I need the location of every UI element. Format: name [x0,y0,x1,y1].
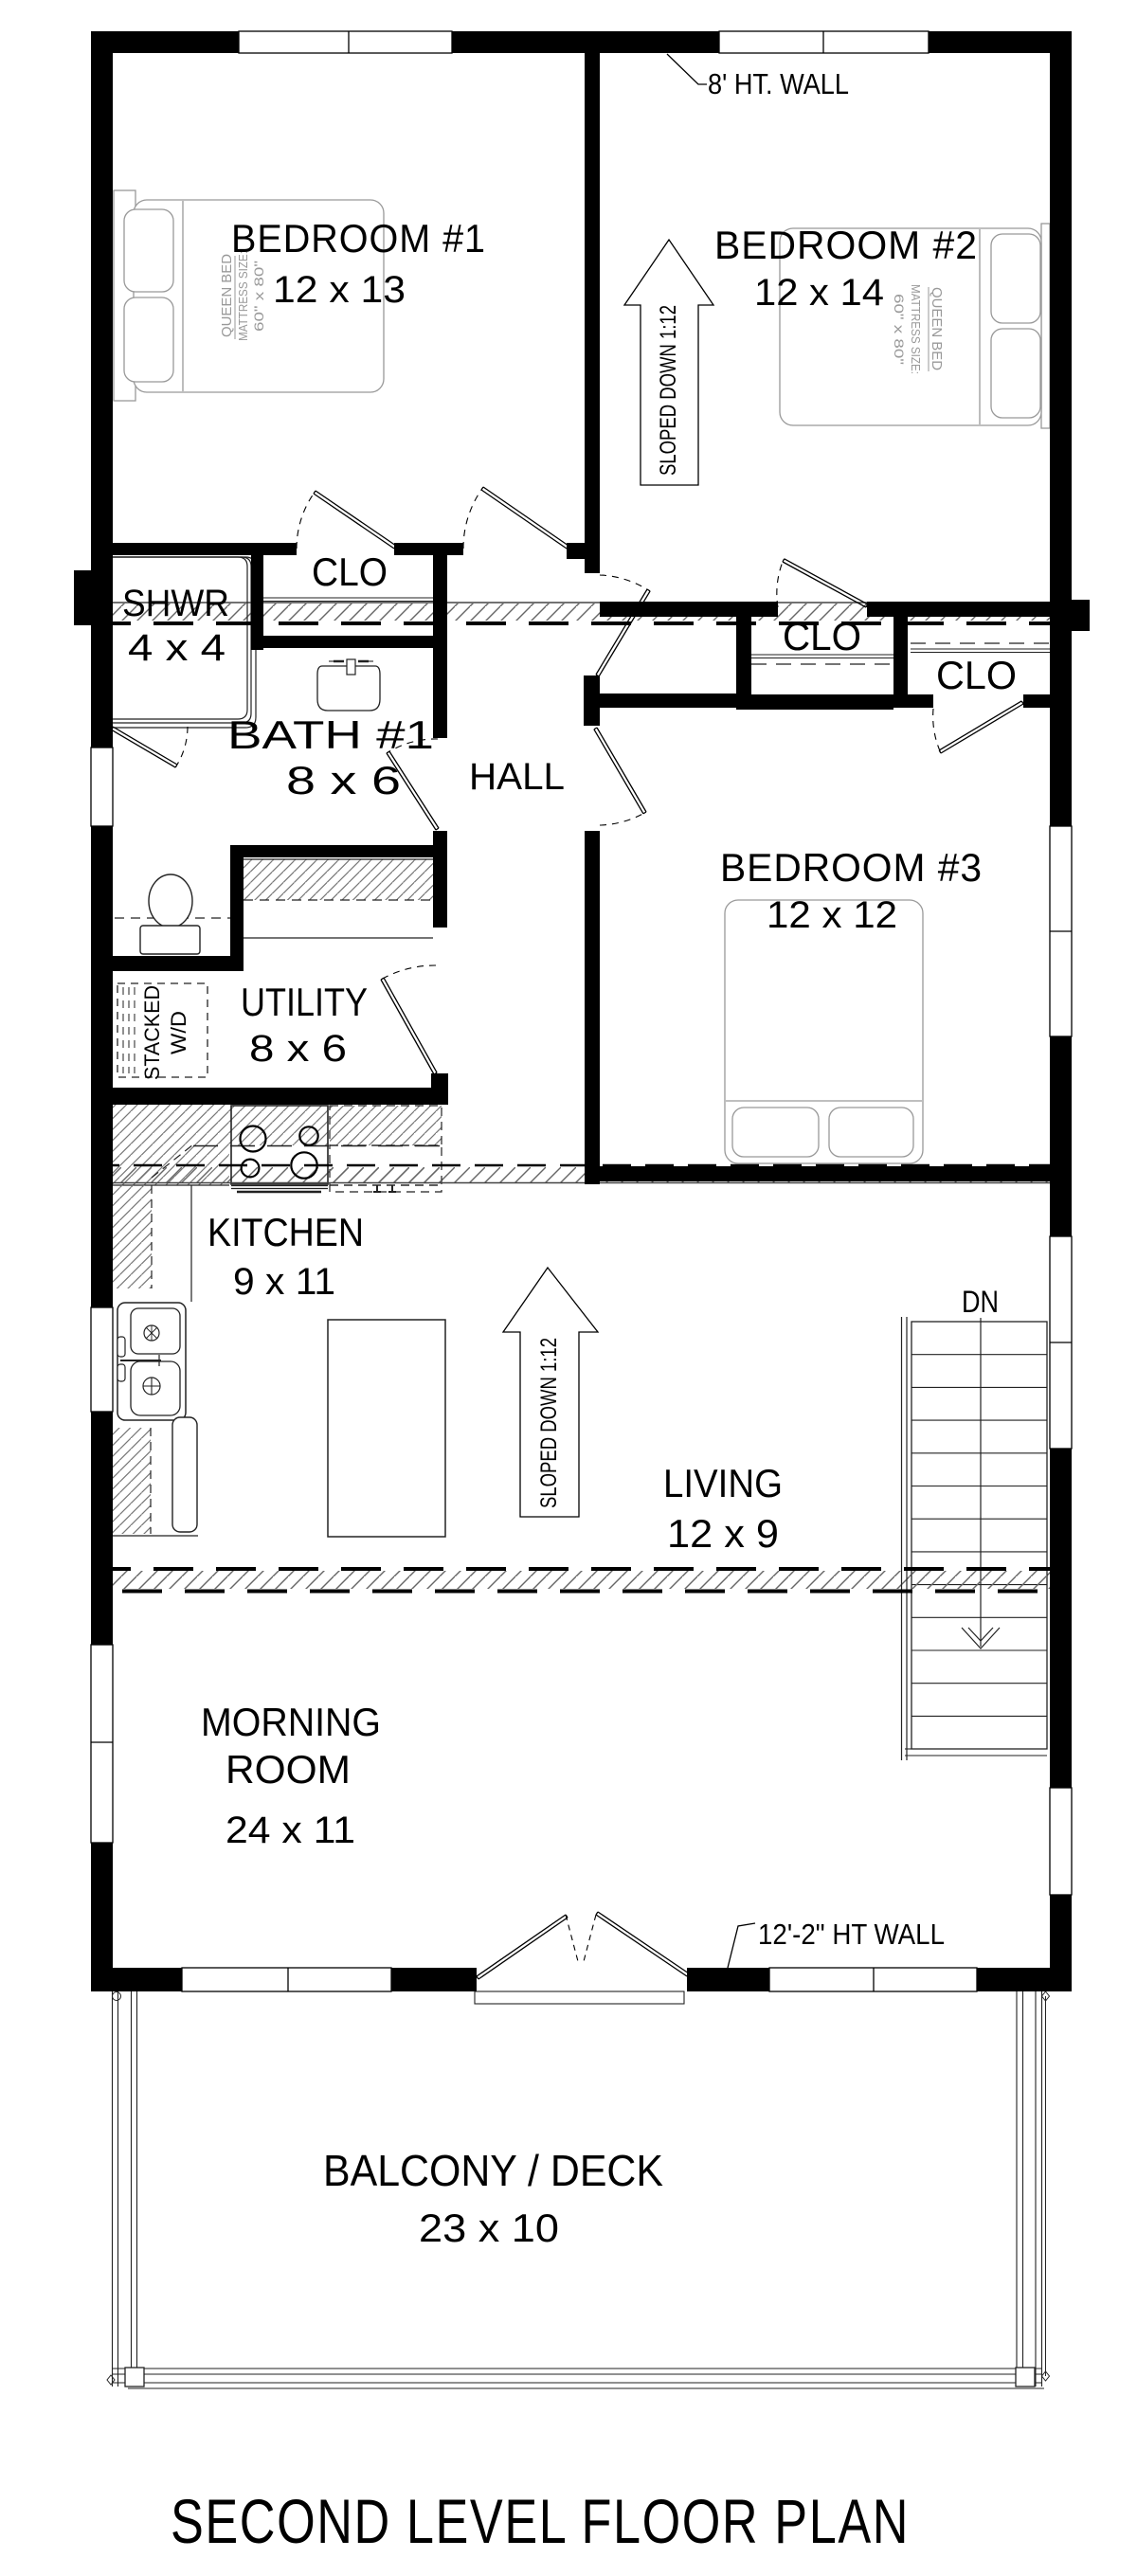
svg-text:UTILITY: UTILITY [241,980,368,1024]
svg-text:SECOND LEVEL FLOOR PLAN: SECOND LEVEL FLOOR PLAN [171,2486,910,2556]
svg-text:MORNING: MORNING [201,1700,381,1744]
svg-text:HALL: HALL [469,756,565,798]
svg-text:8 x 6: 8 x 6 [249,1028,347,1070]
svg-text:4 x 4: 4 x 4 [128,627,226,669]
svg-text:BEDROOM #2: BEDROOM #2 [714,223,978,267]
svg-text:SLOPED DOWN 1:12: SLOPED DOWN 1:12 [656,305,681,476]
svg-text:12'-2" HT WALL: 12'-2" HT WALL [758,1918,945,1951]
svg-text:STACKED: STACKED [140,985,164,1080]
svg-text:23 x 10: 23 x 10 [419,2206,559,2250]
svg-text:W/D: W/D [167,1011,190,1054]
svg-text:12 x 13: 12 x 13 [273,269,406,311]
svg-text:CLO: CLO [312,549,388,594]
svg-text:12 x 14: 12 x 14 [754,272,884,314]
svg-text:MATTRESS SIZE:: MATTRESS SIZE: [236,251,250,341]
svg-text:9 x 11: 9 x 11 [233,1261,335,1303]
svg-text:SHWR: SHWR [122,583,229,624]
svg-text:SLOPED DOWN 1:12: SLOPED DOWN 1:12 [536,1338,562,1508]
svg-text:8 x 6: 8 x 6 [286,758,401,802]
svg-text:BEDROOM #3: BEDROOM #3 [720,845,983,890]
svg-text:BEDROOM #1: BEDROOM #1 [231,216,486,261]
svg-text:DN: DN [962,1285,999,1319]
svg-text:60" x 80": 60" x 80" [251,261,266,332]
svg-text:60" x 80": 60" x 80" [892,294,907,365]
svg-text:ROOM: ROOM [226,1747,351,1792]
svg-text:QUEEN BED: QUEEN BED [929,287,945,370]
svg-text:MATTRESS SIZE:: MATTRESS SIZE: [909,284,923,374]
svg-text:KITCHEN: KITCHEN [208,1210,364,1254]
svg-text:CLO: CLO [936,653,1017,697]
svg-text:CLO: CLO [783,614,861,658]
svg-text:24 x 11: 24 x 11 [226,1810,355,1851]
svg-text:12 x 12: 12 x 12 [767,894,897,936]
svg-text:QUEEN BED: QUEEN BED [219,254,235,337]
svg-text:8' HT. WALL: 8' HT. WALL [708,67,849,100]
svg-text:LIVING: LIVING [663,1461,783,1505]
svg-text:BALCONY / DECK: BALCONY / DECK [323,2146,663,2195]
svg-text:12 x 9: 12 x 9 [667,1511,779,1556]
svg-text:BATH #1: BATH #1 [227,712,434,757]
